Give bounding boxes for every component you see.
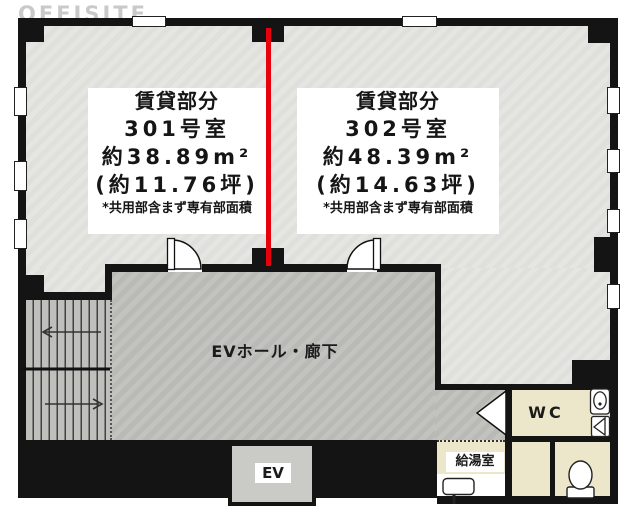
- corridor-label: EVホール・廊下: [175, 338, 375, 362]
- wall-wc-left: [505, 390, 512, 504]
- kitchenette-label: 給湯室: [446, 452, 504, 472]
- pillar-top-left: [18, 18, 44, 42]
- unit-area-sqm: 約38.89m²: [88, 143, 266, 171]
- wall-stairs-top: [18, 292, 112, 300]
- wall-segment: [105, 264, 168, 272]
- window-icon: [14, 161, 27, 191]
- window-icon: [607, 209, 620, 233]
- unit-room-number: 302号室: [297, 115, 499, 143]
- corridor-floor-east: [435, 390, 505, 440]
- wall-wc-divider: [512, 436, 610, 442]
- wall-segment: [284, 264, 347, 272]
- unit-area-tsubo: (約14.63坪): [297, 171, 499, 199]
- unit-area-note: *共用部含まず専有部面積: [297, 199, 499, 218]
- stairs: [26, 300, 112, 440]
- unit-area-sqm: 約48.39m²: [297, 143, 499, 171]
- pillar-top-right: [588, 18, 618, 43]
- unit-section-label: 賃貸部分: [297, 88, 499, 115]
- window-icon: [132, 16, 166, 27]
- unit-302-infobox: 賃貸部分 302号室 約48.39m² (約14.63坪) *共用部含まず専有部…: [297, 88, 499, 234]
- unit-room-number: 301号室: [88, 115, 266, 143]
- wall-stall-divider: [550, 442, 555, 496]
- window-icon: [14, 87, 27, 116]
- window-icon: [607, 284, 620, 309]
- wall-corridor-right: [435, 264, 441, 390]
- floor-plan: OFFISITE EV: [0, 0, 640, 524]
- wall-extension-bottom: [435, 384, 618, 390]
- window-icon: [402, 16, 437, 27]
- window-icon: [607, 149, 620, 173]
- unit-partition-line: [266, 28, 271, 266]
- window-icon: [607, 87, 620, 114]
- pillar-right-mid: [594, 237, 618, 272]
- unit-area-note: *共用部含まず専有部面積: [88, 199, 266, 218]
- wc-label: WC: [518, 403, 574, 422]
- elevator-label: EV: [255, 463, 291, 483]
- unit-section-label: 賃貸部分: [88, 88, 266, 115]
- unit-301-infobox: 賃貸部分 301号室 約38.89m² (約11.76坪) *共用部含まず専有部…: [88, 88, 266, 234]
- kitchenette-counter: [437, 474, 505, 496]
- wall-segment: [377, 264, 441, 272]
- window-icon: [14, 219, 27, 249]
- toilet-stall-room: [512, 442, 610, 496]
- wall-segment: [202, 264, 252, 272]
- unit-area-tsubo: (約11.76坪): [88, 171, 266, 199]
- wall-top: [20, 18, 612, 26]
- wall-bottom-right: [437, 496, 618, 504]
